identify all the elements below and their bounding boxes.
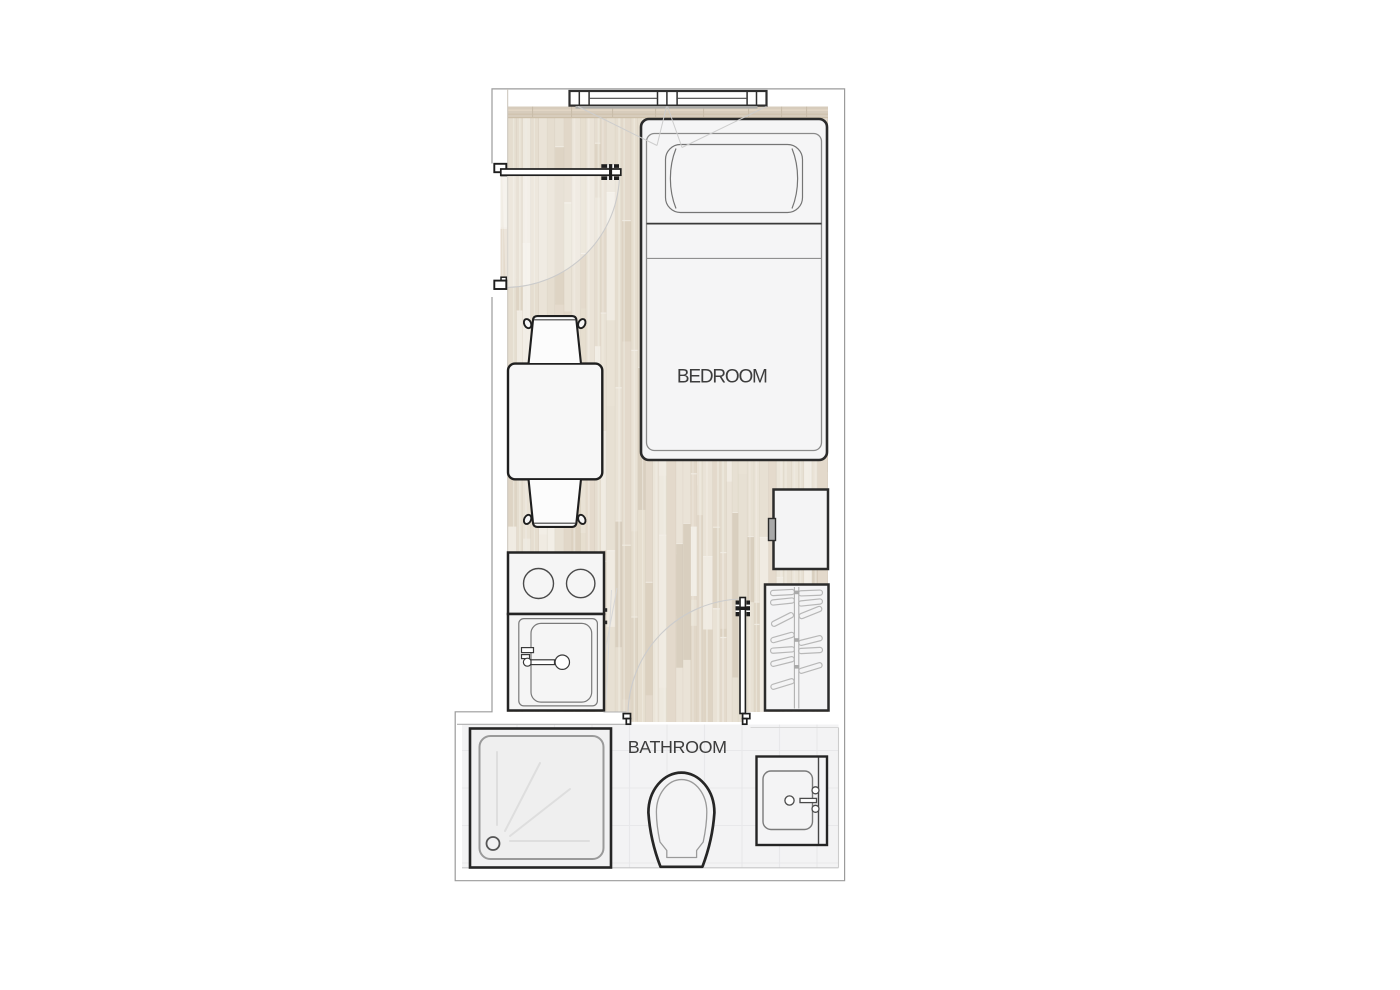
- svg-text:BEDROOM: BEDROOM: [677, 366, 767, 387]
- svg-text:BATHROOM: BATHROOM: [628, 737, 727, 757]
